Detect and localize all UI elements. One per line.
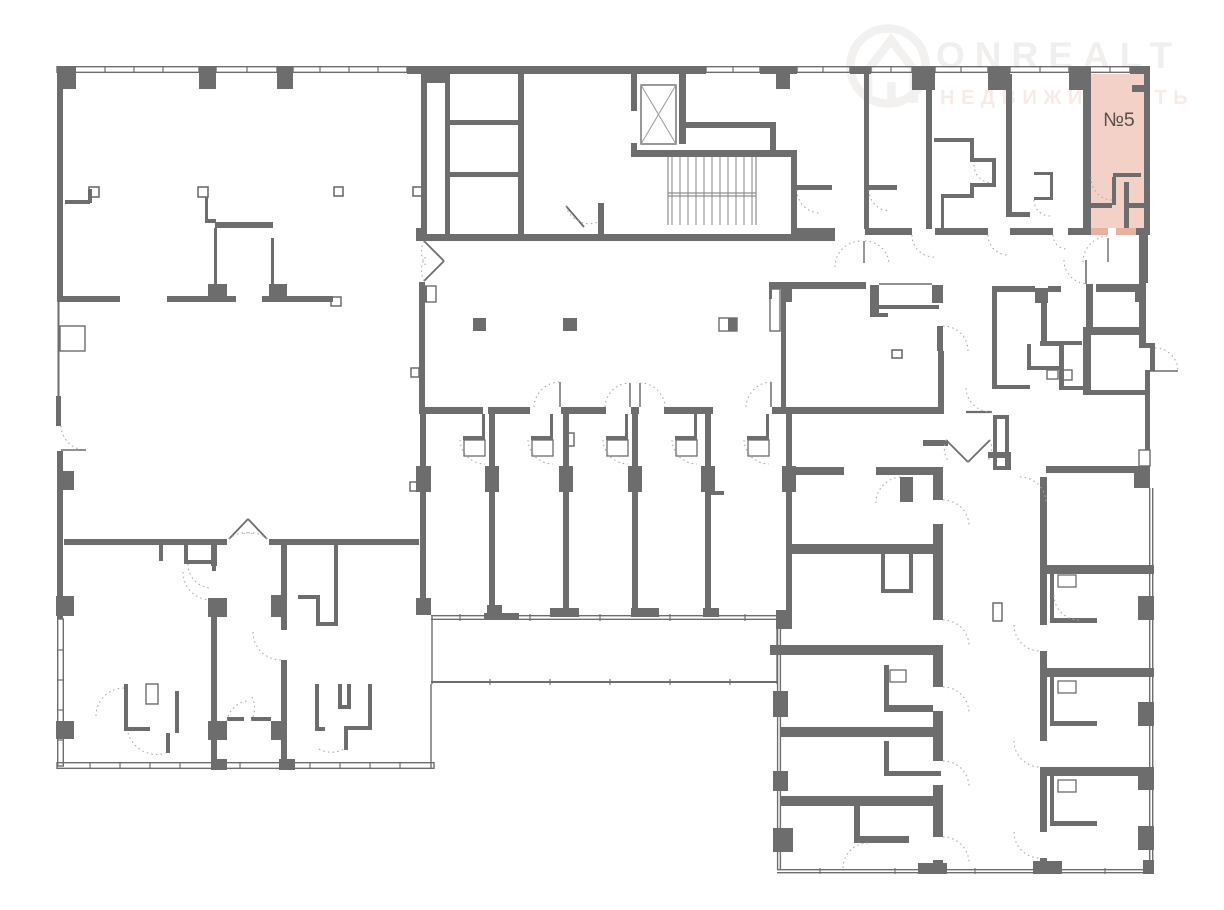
- svg-text:НЕДВИЖИМОСТЬ: НЕДВИЖИМОСТЬ: [940, 87, 1194, 109]
- svg-text:№5: №5: [1103, 109, 1135, 131]
